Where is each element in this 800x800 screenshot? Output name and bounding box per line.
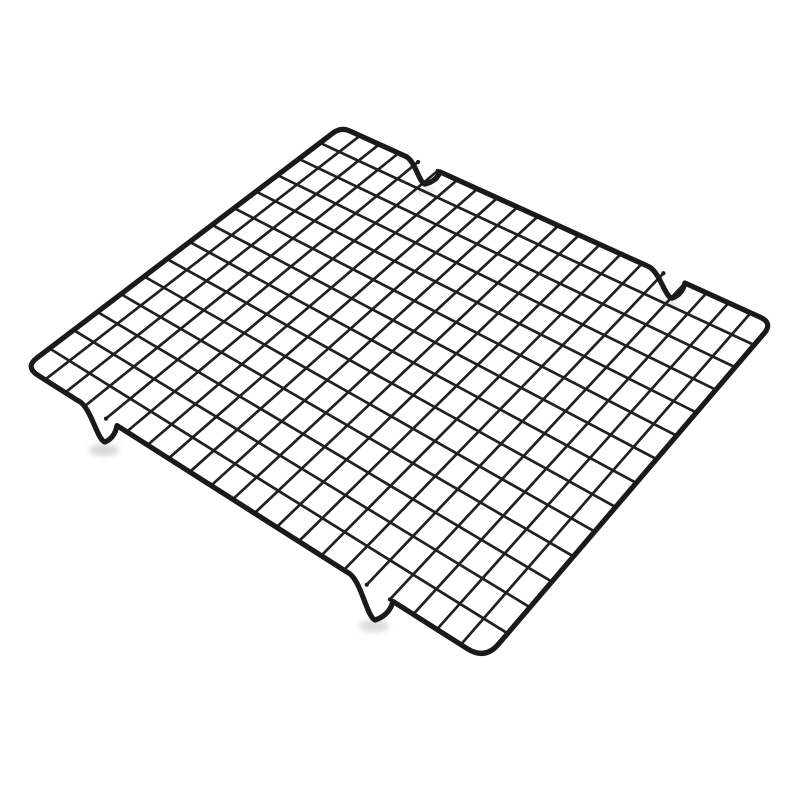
grid-wire [65,144,379,392]
weld-dot [104,416,108,420]
weld-dot [416,160,420,164]
weld-dot [365,583,369,587]
grid-wire [121,294,574,556]
grid-wire [190,198,498,472]
foot-shadow [89,444,119,456]
cooling-rack-photo [0,0,800,800]
grid-wire [190,242,637,483]
grid-wire [45,136,360,380]
grid-wire [234,208,677,436]
grid-wire [169,189,478,459]
grid-wire [461,313,751,645]
weld-dot [661,271,665,275]
grid-wire [106,162,418,419]
product-photo-canvas [0,0,800,800]
grid-wire [256,192,696,413]
grid-wire [148,180,458,445]
grid-wires [45,136,754,645]
grid-wire [127,171,438,432]
grid-wire [86,153,399,405]
